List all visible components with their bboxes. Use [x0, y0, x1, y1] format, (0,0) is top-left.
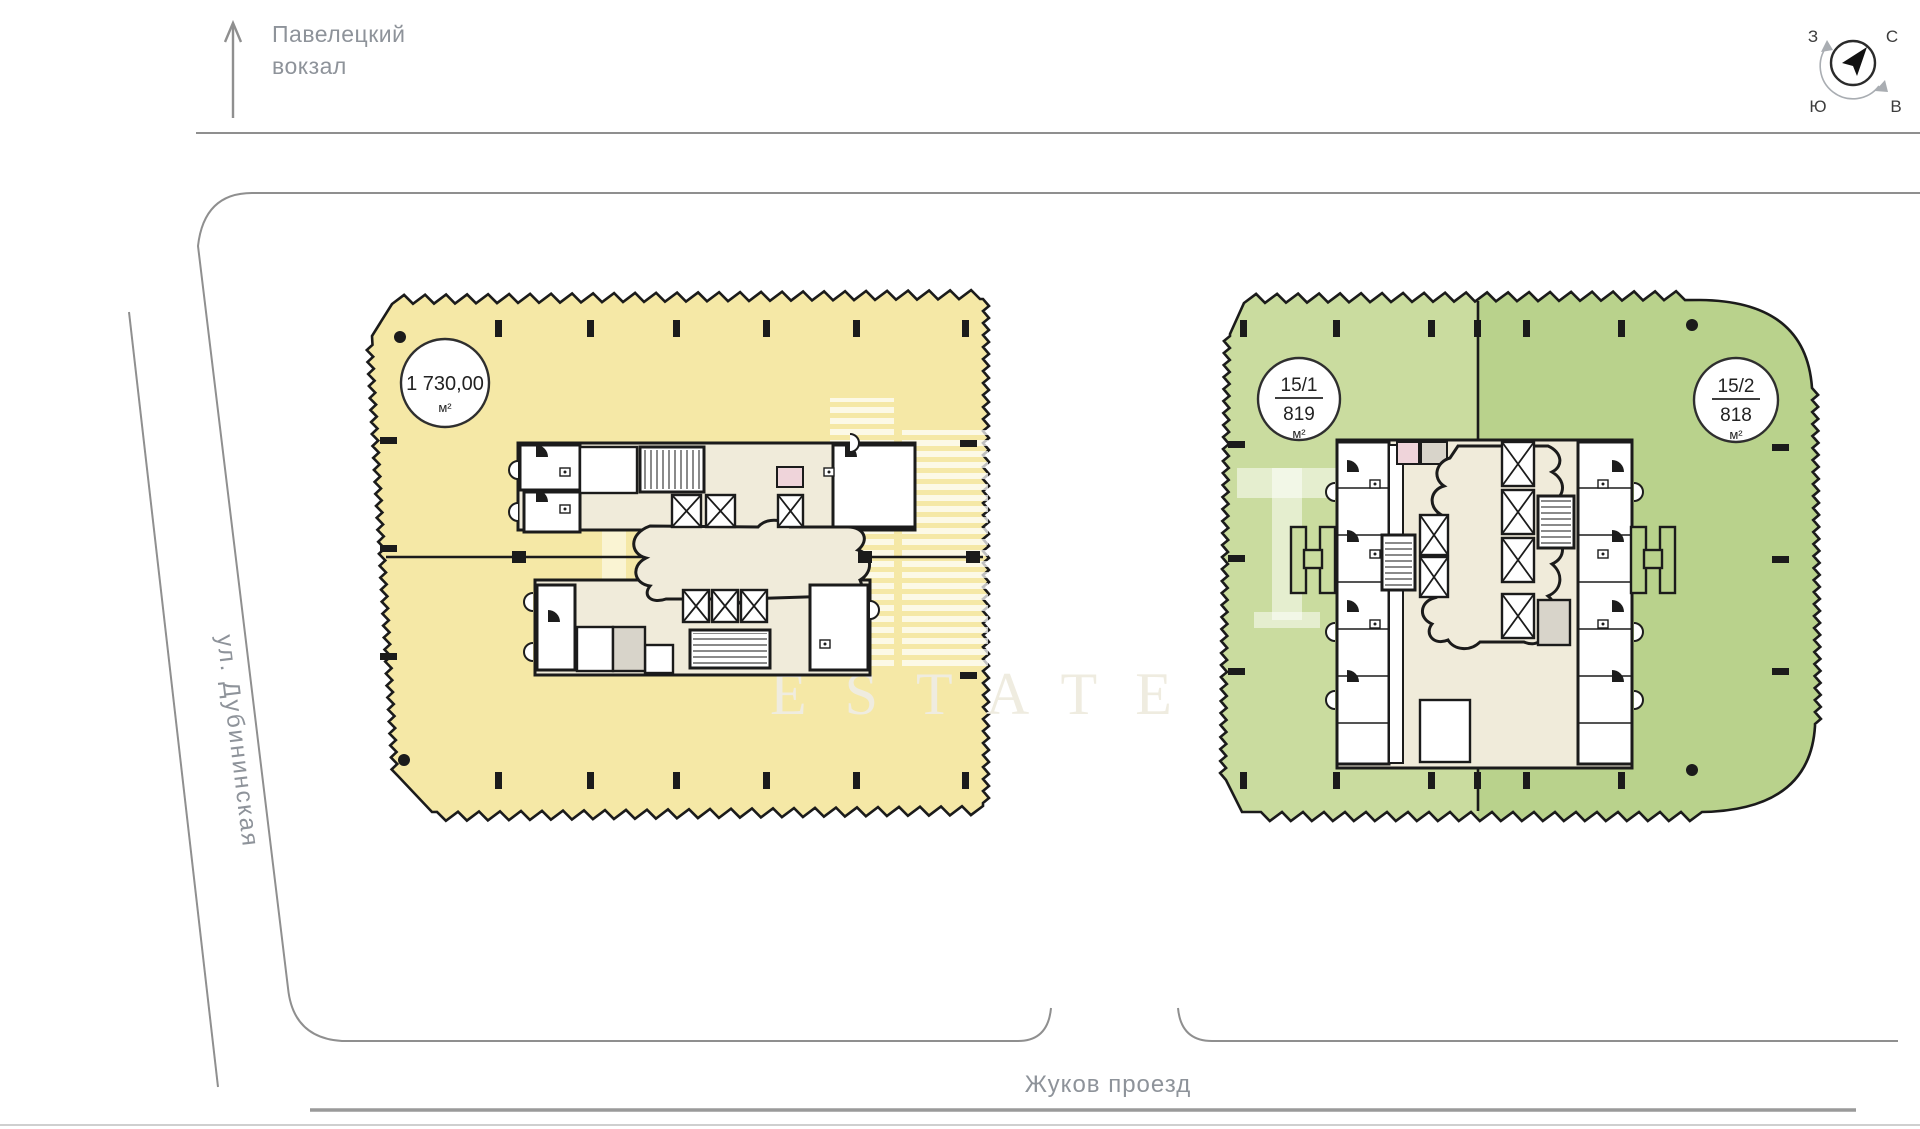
area-unit: м²: [438, 400, 452, 415]
terrace-beam-bridge: [1644, 550, 1662, 568]
door-swing-icon: [1326, 483, 1335, 501]
area-value: 1 730,00: [406, 373, 484, 395]
door-swing-icon: [524, 593, 533, 611]
corner-column-dot: [394, 331, 406, 343]
column-marker: [1428, 320, 1435, 337]
demising-marker: [966, 551, 980, 563]
stair-treads: [643, 450, 701, 489]
door-swing-icon: [524, 643, 533, 661]
column-marker: [380, 653, 397, 660]
buildings-layer: ESTATE: [367, 290, 1898, 830]
terrace-beam-bridge: [1304, 550, 1322, 568]
column-marker: [587, 320, 594, 337]
column-marker: [673, 772, 680, 789]
column-marker: [1333, 772, 1340, 789]
column-marker: [960, 440, 977, 447]
column-marker: [1523, 772, 1530, 789]
column-marker: [1474, 320, 1481, 337]
corner-column-dot: [398, 754, 410, 766]
door-swing-icon: [1634, 623, 1643, 641]
sink-drain: [1374, 483, 1377, 486]
column-marker: [1474, 772, 1481, 789]
corner-column-dot: [1686, 319, 1698, 331]
column-marker: [1228, 555, 1245, 562]
column-marker: [763, 772, 770, 789]
door-swing-icon: [1326, 691, 1335, 709]
plot-area: 818: [1720, 405, 1752, 426]
destination-line1: Павелецкий: [272, 21, 405, 47]
sink-drain: [564, 471, 567, 474]
restroom-block: [833, 445, 915, 527]
column-marker: [1228, 668, 1245, 675]
watermark-letter-shape: [1254, 612, 1320, 628]
sink-drain: [1602, 483, 1605, 486]
door-swing-icon: [1634, 483, 1643, 501]
plot-unit: м²: [1292, 426, 1306, 441]
column-marker: [1228, 441, 1245, 448]
column-marker: [763, 320, 770, 337]
sink-drain: [1374, 623, 1377, 626]
column-marker: [380, 545, 397, 552]
street-label-bottom: Жуков проезд: [1025, 1071, 1191, 1098]
service-room-gray: [1538, 600, 1570, 645]
compass-west: З: [1808, 27, 1818, 46]
column-marker: [1772, 668, 1789, 675]
restroom-block: [810, 585, 868, 670]
street-left-west-curb: [129, 312, 218, 1087]
sink-drain: [564, 508, 567, 511]
column-marker: [380, 437, 397, 444]
area-badge-15-2: 15/2 818 м²: [1694, 358, 1778, 442]
stair-treads: [693, 633, 767, 665]
column-marker: [495, 772, 502, 789]
column-marker: [1240, 772, 1247, 789]
area-badge-left: 1 730,00 м²: [401, 339, 489, 427]
restroom-column: [1578, 442, 1632, 764]
core-right-building: [1291, 440, 1675, 768]
column-marker: [1428, 772, 1435, 789]
column-marker: [1618, 320, 1625, 337]
column-marker: [962, 772, 969, 789]
demising-marker: [512, 551, 526, 563]
site-plan: Павелецкий вокзал ул. Дубининская Жуков …: [0, 0, 1920, 1129]
column-marker: [673, 320, 680, 337]
service-room-pink: [1397, 442, 1419, 464]
area-badge-15-1: 15/1 819 м²: [1258, 358, 1340, 441]
column-marker: [587, 772, 594, 789]
door-swing-icon: [870, 601, 879, 619]
restroom-block: [524, 492, 580, 532]
column-marker: [853, 320, 860, 337]
restroom-block: [537, 585, 575, 670]
column-marker: [960, 672, 977, 679]
door-swing-icon: [850, 434, 859, 452]
column-marker: [1240, 320, 1247, 337]
street-label-left: ул. Дубининская: [211, 633, 264, 849]
sink-drain: [1374, 553, 1377, 556]
service-room: [1420, 700, 1470, 762]
stair-treads: [1385, 538, 1412, 587]
plot-area: 819: [1283, 404, 1315, 425]
corridor-strip: [1389, 445, 1403, 763]
restroom-column: [1337, 442, 1389, 764]
sink-drain: [1602, 553, 1605, 556]
direction-arrow-icon: [225, 23, 241, 118]
column-marker: [1772, 556, 1789, 563]
service-room: [645, 645, 673, 673]
sink-drain: [824, 643, 827, 646]
sink-drain: [828, 471, 831, 474]
compass-east: В: [1890, 97, 1901, 116]
service-room-pink: [777, 467, 803, 487]
door-swing-icon: [1326, 623, 1335, 641]
corner-column-dot: [1686, 764, 1698, 776]
service-room: [580, 447, 637, 493]
plot-unit: м²: [1729, 427, 1743, 442]
column-marker: [1523, 320, 1530, 337]
plot-number: 15/2: [1718, 376, 1755, 397]
compass-south: Ю: [1809, 97, 1826, 116]
plot-number: 15/1: [1281, 375, 1318, 396]
column-marker: [1618, 772, 1625, 789]
stair-treads: [1541, 499, 1571, 545]
demising-marker: [858, 551, 872, 563]
door-swing-icon: [1634, 691, 1643, 709]
destination-line2: вокзал: [272, 53, 347, 79]
door-swing-icon: [509, 503, 518, 521]
door-swing-icon: [509, 461, 518, 479]
column-marker: [1772, 444, 1789, 451]
column-marker: [1333, 320, 1340, 337]
compass-north: С: [1886, 27, 1898, 46]
restroom-block: [520, 445, 580, 490]
sink-drain: [1602, 623, 1605, 626]
compass-icon: З С Ю В: [1808, 27, 1902, 116]
column-marker: [495, 320, 502, 337]
service-room-gray: [613, 627, 645, 671]
column-marker: [962, 320, 969, 337]
service-room: [577, 627, 613, 671]
column-marker: [853, 772, 860, 789]
